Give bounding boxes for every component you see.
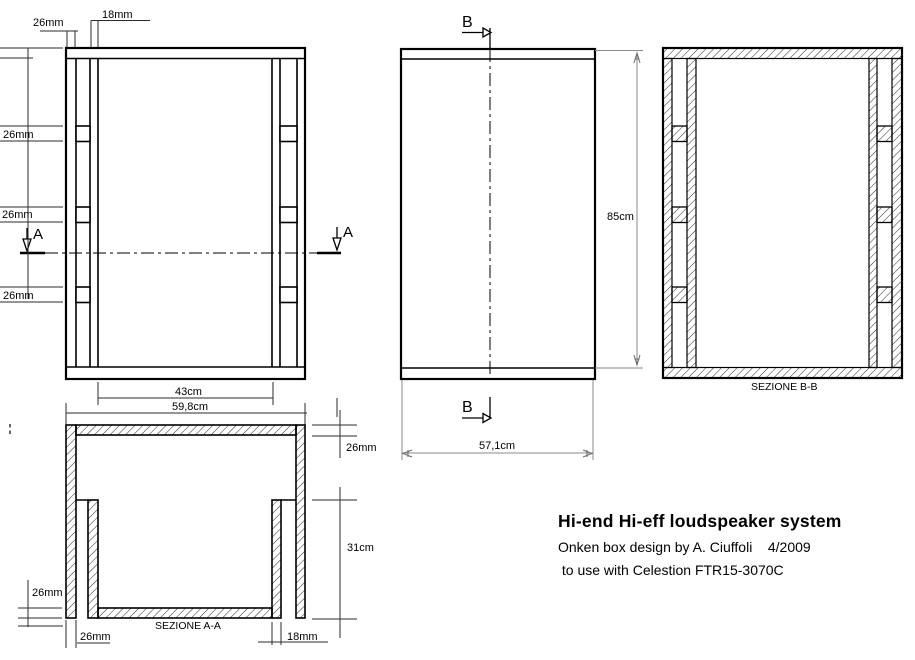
dim-label-depth: 57,1cm — [479, 440, 515, 452]
section-bb-outline — [663, 48, 902, 378]
spacer-block — [280, 287, 297, 303]
drawing-title: Hi-end Hi-eff loudspeaker system — [558, 511, 842, 532]
back-panel-section — [76, 425, 296, 435]
spacer-block-section — [672, 207, 687, 223]
dim-label-duct-depth: 31cm — [347, 542, 374, 554]
dim-label-slat: 18mm — [287, 631, 318, 643]
section-aa-panels — [66, 425, 305, 618]
cut-label-a-left: A — [33, 226, 43, 243]
dim-label-back-panel: 26mm — [346, 442, 377, 454]
spacer-block — [76, 287, 90, 303]
dim-label-slot-1: 26mm — [3, 129, 34, 141]
dim-label-slat-thickness: 18mm — [102, 9, 133, 21]
section-cut-marker-b-top — [462, 28, 491, 49]
left-wall-section — [663, 59, 672, 368]
section-bb-title: SEZIONE B-B — [751, 381, 818, 393]
spacer-block-section — [877, 126, 892, 142]
cut-label-a-right: A — [343, 224, 353, 241]
spacer-block — [76, 126, 90, 142]
cut-arrow-down-icon — [333, 238, 341, 250]
dim-label-height: 85cm — [607, 211, 634, 223]
bottom-panel-section — [663, 368, 902, 379]
spacer-block — [76, 207, 90, 223]
front-view: 26mm 18mm 26mm 26mm 26mm 43cm 59,8cm A A — [0, 9, 353, 428]
top-panel-section — [663, 48, 902, 59]
spacer-block-section — [672, 126, 687, 142]
side-view-outline — [401, 49, 595, 379]
spacer-block — [280, 126, 297, 142]
side-view: B B 85cm 57,1cm — [401, 14, 643, 460]
spacer-block-section — [672, 287, 687, 303]
front-baffle-section — [98, 608, 272, 618]
title-block: Hi-end Hi-eff loudspeaker system Onken b… — [558, 511, 842, 578]
dim-label-slot-2: 26mm — [2, 209, 33, 221]
left-duct-slat-section — [88, 500, 98, 618]
loudspeaker-plan-drawing: 26mm 18mm 26mm 26mm 26mm 43cm 59,8cm A A… — [0, 0, 915, 660]
left-slat-section — [687, 59, 696, 368]
right-wall-section — [892, 59, 902, 368]
dim-label-wall-thickness: 26mm — [33, 17, 64, 29]
dim-label-wall: 26mm — [80, 631, 111, 643]
cut-arrow-down-icon — [23, 239, 31, 251]
section-aa-view: 26mm 31cm 26mm 26mm 18mm SEZIONE A-A — [10, 410, 377, 648]
front-view-outline — [66, 48, 305, 379]
dim-label-bottom-panel: 26mm — [32, 587, 63, 599]
spacer-block-section — [877, 287, 892, 303]
spacer-block — [280, 207, 297, 223]
right-slat-section — [869, 59, 877, 368]
drawing-subtitle: Onken box design by A. Ciuffoli 4/2009 — [558, 539, 842, 555]
dim-label-slot-3: 26mm — [3, 290, 34, 302]
right-wall-section — [296, 425, 305, 618]
left-wall-section — [66, 425, 76, 618]
right-duct-slat-section — [272, 500, 281, 618]
section-aa-title: SEZIONE A-A — [155, 620, 221, 632]
section-bb-view: SEZIONE B-B — [663, 48, 902, 393]
drawing-note: to use with Celestion FTR15-3070C — [558, 562, 842, 578]
dim-label-outer-width: 59,8cm — [172, 401, 208, 413]
cut-label-b-bottom: B — [462, 399, 473, 416]
cut-label-b-top: B — [462, 14, 473, 31]
dim-label-inner-width: 43cm — [175, 386, 202, 398]
spacer-block-section — [877, 207, 892, 223]
